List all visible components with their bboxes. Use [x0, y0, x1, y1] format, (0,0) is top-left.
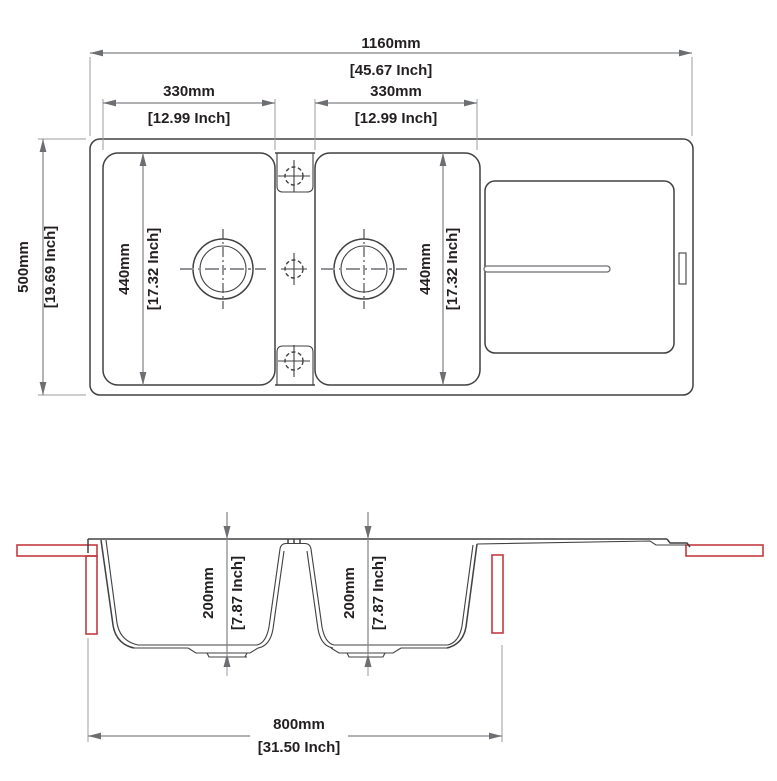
dim-bowl-span: 800mm [31.50 Inch] [88, 638, 502, 756]
arrow-up [365, 654, 372, 667]
dim-left-bowl-length: 440mm [17.32 Inch] [116, 153, 162, 385]
arrow-down [224, 526, 231, 539]
dim-overall-depth: 500mm [19.69 Inch] [15, 139, 86, 395]
left-wall-inner [106, 540, 138, 645]
dim-label-inch: [17.32 Inch] [444, 228, 461, 311]
dim-label-inch: [12.99 Inch] [148, 110, 231, 127]
bowl1-drain-boss [188, 648, 258, 657]
arrow-right [262, 100, 275, 107]
dim-label-mm: 800mm [273, 716, 325, 733]
arrow-up [140, 153, 147, 166]
arrow-left [315, 100, 328, 107]
dim-right-bowl-length: 440mm [17.32 Inch] [417, 153, 461, 385]
dim-label-inch: [31.50 Inch] [258, 739, 341, 756]
drain-right [321, 229, 407, 309]
mount-clip-right [492, 555, 503, 633]
sink-technical-drawing-page: 1160mm [45.67 Inch] 330mm [12.99 Inch] 3… [0, 0, 777, 781]
tap-hole-crosshair [281, 253, 307, 285]
arrow-down [140, 372, 147, 385]
dim-label-inch: [7.87 Inch] [229, 556, 246, 630]
bowl2-drain-boss [331, 648, 401, 657]
right-wall-outer [447, 544, 477, 648]
arrow-down [440, 372, 447, 385]
tap-pocket-top [277, 153, 313, 192]
dim-label-inch: [12.99 Inch] [355, 110, 438, 127]
section-view: 200mm [7.87 Inch] 200mm [7.87 Inch] 800m… [17, 512, 763, 756]
dim-label-mm: 330mm [163, 83, 215, 100]
dim-left-bowl-width: 330mm [12.99 Inch] [103, 83, 275, 150]
dim-label-inch: [45.67 Inch] [350, 62, 433, 79]
countertop-right [686, 545, 763, 556]
dim-label-mm: 500mm [15, 241, 32, 293]
top-view: 1160mm [45.67 Inch] 330mm [12.99 Inch] 3… [15, 35, 693, 395]
dim-label-inch: [17.32 Inch] [145, 228, 162, 311]
dim-label-mm: 330mm [370, 83, 422, 100]
arrow-left [90, 50, 103, 57]
arrow-left [103, 100, 116, 107]
drain-left [180, 229, 266, 309]
bowl1-bottom [134, 645, 257, 648]
arrow-up [440, 153, 447, 166]
mount-clip-left [86, 556, 97, 634]
arrow-down [40, 382, 47, 395]
arrow-down [365, 526, 372, 539]
overflow-cutout [679, 253, 686, 284]
tap-hole-bottom [278, 345, 310, 377]
dim-label-mm: 200mm [341, 567, 358, 619]
divider-left-outer [258, 551, 284, 648]
bowl2-bottom [334, 645, 448, 648]
arrow-up [224, 654, 231, 667]
divider-inner [257, 544, 334, 646]
arrow-right [679, 50, 692, 57]
arrow-left [88, 733, 101, 740]
tap-hole-middle [281, 253, 307, 285]
dim-label-inch: [19.69 Inch] [42, 226, 59, 309]
rim-top-line [88, 539, 690, 547]
arrow-up [40, 139, 47, 152]
dim-right-bowl-width: 330mm [12.99 Inch] [315, 83, 477, 150]
sink-section-profile [88, 539, 690, 676]
right-wall-inner [448, 545, 473, 645]
sink-technical-drawing: 1160mm [45.67 Inch] 330mm [12.99 Inch] 3… [0, 0, 777, 781]
tap-hole-top [278, 160, 310, 192]
dim-label-inch: [7.87 Inch] [370, 556, 387, 630]
tap-hole-crosshair [278, 345, 310, 377]
arrow-right [489, 733, 502, 740]
divider-right-outer [307, 551, 333, 648]
left-wall-outer [101, 540, 134, 648]
drainboard-underside [477, 541, 686, 545]
arrow-right [464, 100, 477, 107]
drainboard-groove [484, 266, 610, 272]
divider-top-ticks [288, 540, 300, 544]
countertop-left [17, 545, 97, 556]
tap-hole-crosshair [278, 160, 310, 192]
dim-label-mm: 440mm [417, 243, 434, 295]
dim-left-bowl-depth: 200mm [7.87 Inch] [200, 512, 246, 667]
dim-label-mm: 440mm [116, 243, 133, 295]
dim-label-mm: 1160mm [361, 35, 420, 52]
dim-right-bowl-depth: 200mm [7.87 Inch] [341, 512, 387, 667]
dim-label-mm: 200mm [200, 567, 217, 619]
